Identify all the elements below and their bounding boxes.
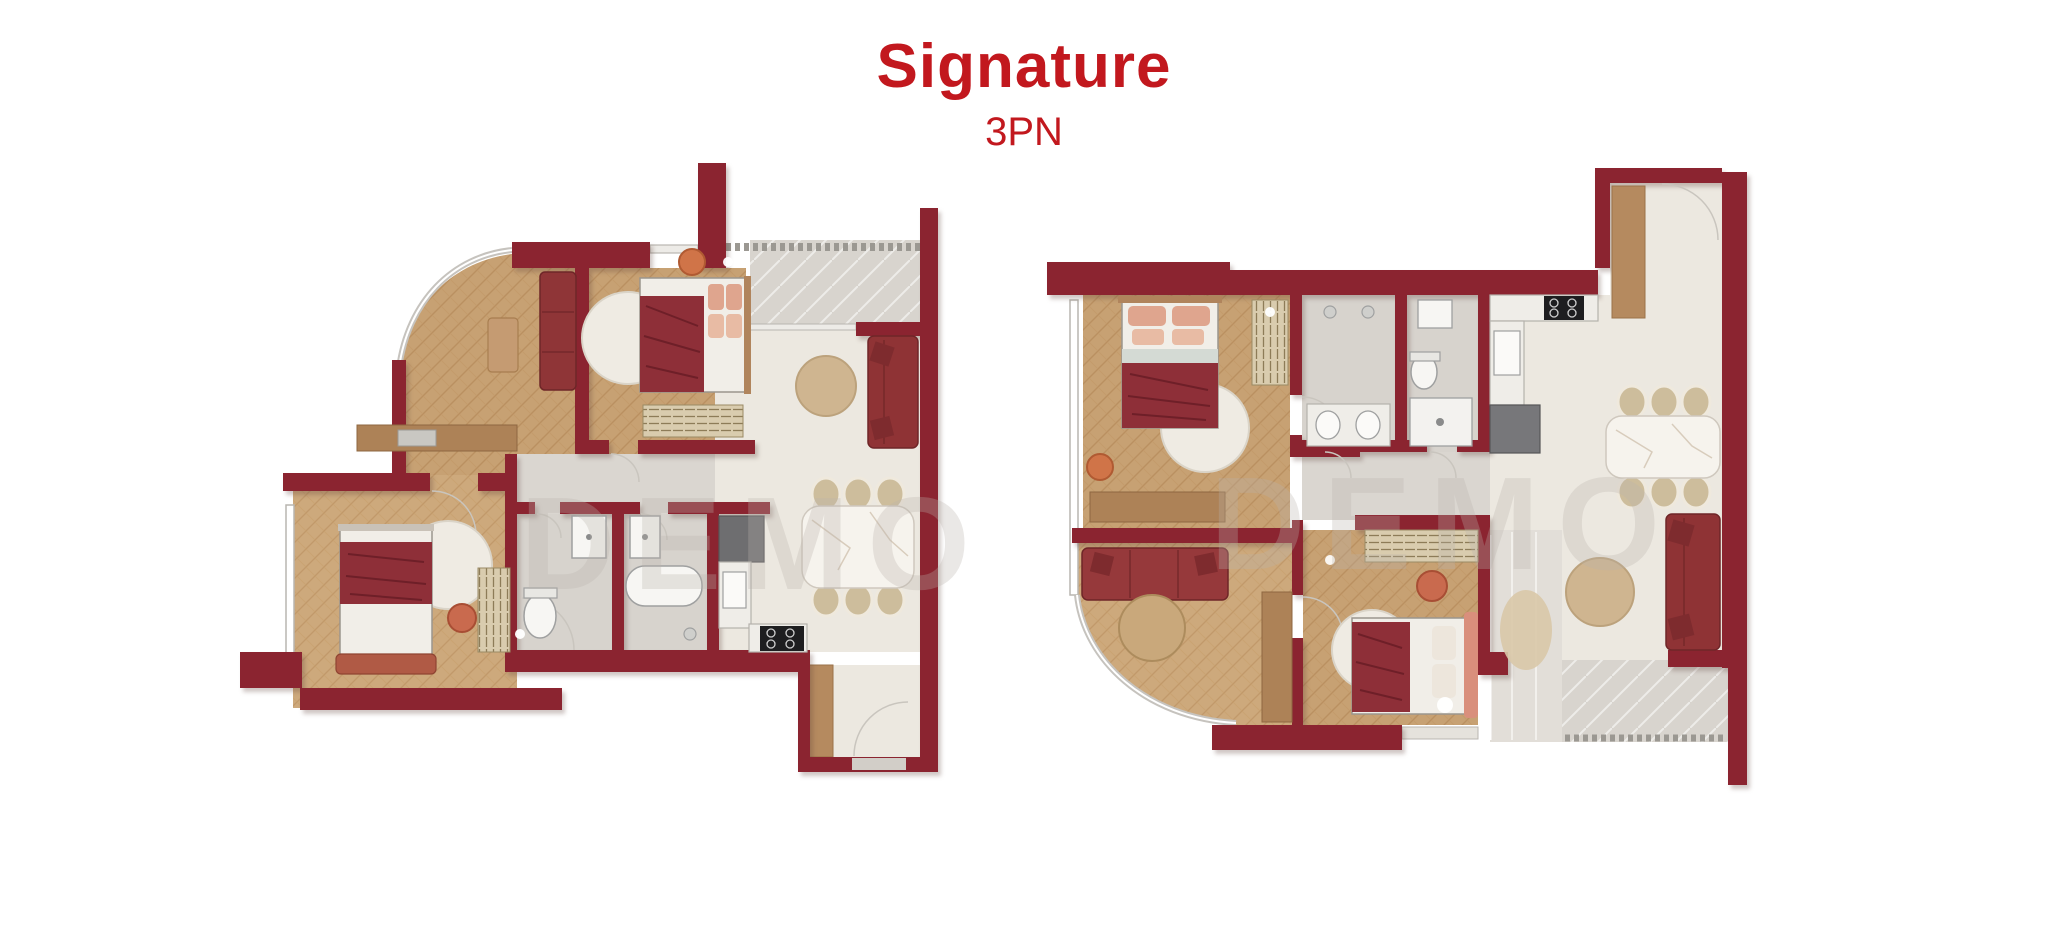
wall xyxy=(589,440,609,454)
sofa-pillow xyxy=(1194,552,1218,576)
wardrobe xyxy=(478,568,510,652)
sink-drain xyxy=(586,534,592,540)
toilet-tank xyxy=(524,588,557,598)
shower-head xyxy=(684,628,696,640)
wall xyxy=(240,652,302,688)
wall xyxy=(1047,262,1230,295)
bedroom1-window xyxy=(1070,300,1078,595)
dining-chair xyxy=(812,584,840,616)
dining-chair xyxy=(1650,476,1678,508)
dining-chair xyxy=(1618,386,1646,418)
wall xyxy=(920,208,938,772)
hallway-floor xyxy=(1302,452,1490,520)
pouf xyxy=(1087,454,1113,480)
vanity-sink xyxy=(1356,411,1380,439)
console-desk xyxy=(357,425,517,451)
sofa xyxy=(540,272,576,390)
wall xyxy=(283,473,430,491)
wall xyxy=(1212,725,1402,750)
bed xyxy=(640,276,751,394)
kitchen-sink xyxy=(1494,331,1520,375)
wall xyxy=(856,322,922,336)
bed xyxy=(1352,612,1478,718)
desk-object xyxy=(398,430,436,446)
fridge xyxy=(1490,405,1540,453)
shower-head xyxy=(1362,306,1374,318)
living-sofa-left xyxy=(1082,548,1228,600)
balcony-floor xyxy=(1562,660,1728,742)
shower-drain xyxy=(1436,418,1444,426)
dining-chair xyxy=(1682,476,1710,508)
wall xyxy=(1395,283,1407,452)
bathtub xyxy=(626,566,702,606)
pouf xyxy=(679,249,705,275)
vanity-sink xyxy=(1316,411,1340,439)
dining-chair xyxy=(1618,476,1646,508)
bed-bench xyxy=(336,654,436,674)
wardrobe xyxy=(1365,530,1478,562)
pillow xyxy=(1172,329,1204,345)
wall xyxy=(707,514,719,652)
wall xyxy=(517,502,535,514)
wall xyxy=(1478,652,1508,675)
bedroom2-window xyxy=(286,505,294,660)
wall xyxy=(505,650,810,672)
bed xyxy=(336,524,436,674)
wall xyxy=(1478,283,1490,452)
pillow xyxy=(1128,306,1166,326)
bed-sheet-band xyxy=(1122,349,1218,363)
wall xyxy=(300,688,562,710)
console-tv xyxy=(1262,592,1292,722)
wall xyxy=(638,440,755,454)
ceiling-light xyxy=(1265,307,1275,317)
pillow xyxy=(1432,664,1456,698)
ceiling-light xyxy=(723,257,733,267)
bed xyxy=(1118,296,1222,428)
dining-chair xyxy=(876,478,904,510)
entry-floor xyxy=(833,665,920,757)
floor-plan-page: Signature 3PN xyxy=(0,0,2048,946)
dining-set xyxy=(1606,386,1720,508)
dining-set xyxy=(802,478,914,616)
dining-chair xyxy=(844,478,872,510)
console-desk xyxy=(1090,492,1225,522)
bedroom3-threshold xyxy=(1402,727,1478,739)
bathroom-sink xyxy=(1418,300,1452,328)
wall xyxy=(698,163,726,268)
wall xyxy=(1290,295,1302,395)
kitchen-sink xyxy=(723,572,746,608)
balcony-window-sill xyxy=(750,324,856,330)
pillow xyxy=(708,314,724,338)
foyer-sofa xyxy=(868,336,918,448)
fridge xyxy=(719,516,764,562)
wall xyxy=(512,242,650,268)
dining-chair xyxy=(812,478,840,510)
ceiling-light xyxy=(1437,697,1453,713)
ceiling-light xyxy=(515,629,525,639)
bed-headboard xyxy=(338,524,434,531)
wall xyxy=(575,268,589,454)
pillow xyxy=(1172,306,1210,326)
pillow xyxy=(1432,626,1456,660)
toilet xyxy=(524,594,556,638)
dining-chair xyxy=(1650,386,1678,418)
bed-headboard xyxy=(1464,612,1478,718)
wall xyxy=(1722,172,1747,668)
entry-cabinet xyxy=(807,665,833,757)
wall xyxy=(478,473,517,491)
floor-plans-canvas xyxy=(0,0,2048,946)
wardrobe xyxy=(643,405,743,437)
wall xyxy=(612,514,624,652)
wall xyxy=(1595,168,1722,183)
left-floor-plan xyxy=(240,163,938,772)
wall xyxy=(560,502,640,514)
pillow xyxy=(708,284,724,310)
wall xyxy=(798,665,810,759)
entry-cabinet xyxy=(1612,186,1645,318)
right-floor-plan xyxy=(1047,168,1747,785)
wall xyxy=(1230,270,1598,295)
sink-drain xyxy=(642,534,648,540)
round-rug-tan xyxy=(1566,558,1634,626)
living-sofa-right xyxy=(1666,514,1720,650)
coffee-table-round xyxy=(1119,595,1185,661)
dining-chair xyxy=(876,584,904,616)
wall xyxy=(668,502,770,514)
wall xyxy=(1355,515,1490,530)
wall xyxy=(1478,515,1490,675)
pouf xyxy=(1417,571,1447,601)
dining-chair xyxy=(844,584,872,616)
wall xyxy=(392,360,406,475)
bed-headboard xyxy=(744,276,751,394)
wall xyxy=(1292,520,1303,595)
bed-blanket xyxy=(1122,363,1218,428)
balcony-floor xyxy=(750,240,922,330)
cooktop xyxy=(1544,296,1584,320)
pillow xyxy=(726,314,742,338)
balcony-rug xyxy=(1500,590,1552,670)
cooktop xyxy=(760,626,804,651)
wall xyxy=(1072,528,1292,543)
entry-threshold xyxy=(852,758,906,770)
coffee-table xyxy=(488,318,518,372)
toilet-tank xyxy=(1410,352,1440,361)
wall xyxy=(1292,638,1303,725)
pillow xyxy=(1132,329,1164,345)
round-rug-tan xyxy=(796,356,856,416)
pillow xyxy=(726,284,742,310)
bed-headboard xyxy=(1118,296,1222,303)
wall xyxy=(1668,650,1730,667)
wall xyxy=(1728,668,1747,785)
dining-chair xyxy=(1682,386,1710,418)
dining-table xyxy=(1606,416,1720,478)
pouf xyxy=(448,604,476,632)
wall xyxy=(1595,183,1610,268)
shower-head xyxy=(1324,306,1336,318)
ceiling-light xyxy=(1325,555,1335,565)
